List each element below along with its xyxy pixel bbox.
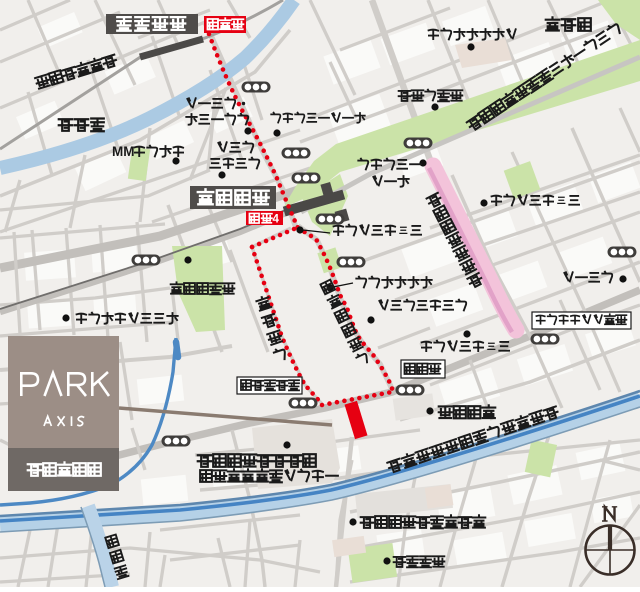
svg-text:MM: MM	[112, 144, 135, 159]
svg-text:4: 4	[273, 214, 280, 226]
